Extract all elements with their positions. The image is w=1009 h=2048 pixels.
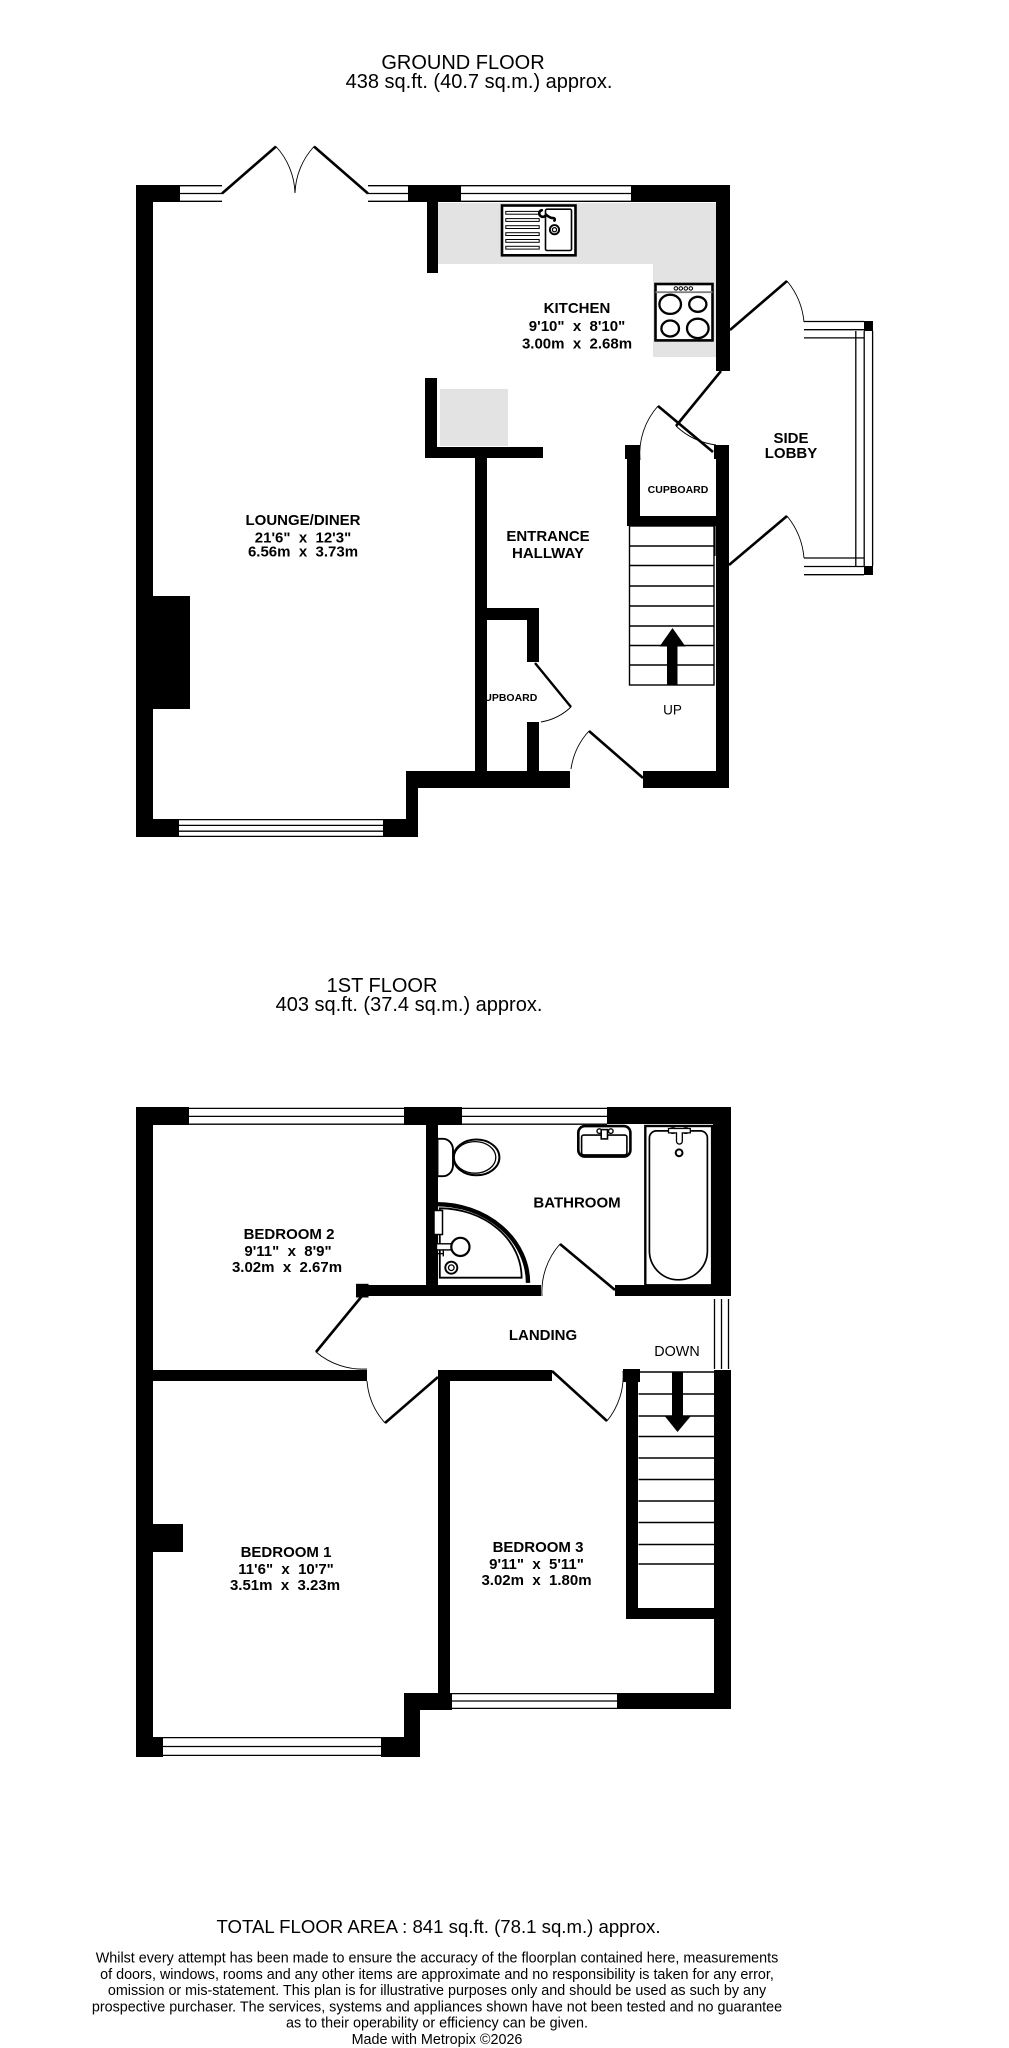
svg-text:BATHROOM: BATHROOM (533, 1195, 620, 1212)
svg-text:DOWN: DOWN (654, 1344, 699, 1360)
svg-text:as to their operability or eff: as to their operability or efficiency ca… (286, 2016, 588, 2032)
svg-text:6.56m x 3.73m: 6.56m x 3.73m (248, 544, 358, 561)
svg-text:LOBBY: LOBBY (765, 445, 818, 462)
svg-text:9'11" x 8'9": 9'11" x 8'9" (244, 1243, 331, 1260)
svg-text:omission or mis-statement. Thi: omission or mis-statement. This plan is … (108, 1983, 767, 1999)
svg-text:prospective purchaser. The ser: prospective purchaser. The services, sys… (92, 1999, 782, 2015)
svg-text:UP: UP (663, 703, 682, 718)
svg-text:9'11" x 5'11": 9'11" x 5'11" (489, 1556, 584, 1573)
svg-text:3.02m x 1.80m: 3.02m x 1.80m (481, 1572, 591, 1589)
svg-text:LANDING: LANDING (509, 1327, 577, 1344)
svg-text:Made with Metropix ©2026: Made with Metropix ©2026 (352, 2032, 523, 2048)
svg-text:BEDROOM 1: BEDROOM 1 (241, 1544, 332, 1561)
svg-text:BEDROOM 3: BEDROOM 3 (493, 1539, 584, 1556)
svg-text:KITCHEN: KITCHEN (544, 300, 611, 317)
svg-text:9'10" x 8'10": 9'10" x 8'10" (529, 318, 625, 335)
svg-text:3.51m x 3.23m: 3.51m x 3.23m (230, 1577, 340, 1594)
svg-text:438 sq.ft. (40.7 sq.m.) approx: 438 sq.ft. (40.7 sq.m.) approx. (346, 71, 613, 93)
svg-text:of doors, windows, rooms and a: of doors, windows, rooms and any other i… (100, 1967, 774, 1983)
svg-text:HALLWAY: HALLWAY (512, 545, 584, 562)
svg-text:3.02m x 2.67m: 3.02m x 2.67m (232, 1259, 342, 1276)
svg-text:Whilst every attempt has been: Whilst every attempt has been made to en… (96, 1951, 779, 1967)
svg-text:CUPBOARD: CUPBOARD (648, 484, 709, 496)
svg-text:ENTRANCE: ENTRANCE (506, 528, 589, 545)
svg-text:403 sq.ft. (37.4 sq.m.) approx: 403 sq.ft. (37.4 sq.m.) approx. (276, 994, 543, 1016)
svg-text:BEDROOM 2: BEDROOM 2 (244, 1226, 335, 1243)
svg-text:3.00m x 2.68m: 3.00m x 2.68m (522, 336, 632, 353)
svg-text:TOTAL FLOOR AREA : 841 sq.ft.: TOTAL FLOOR AREA : 841 sq.ft. (78.1 sq.m… (216, 1916, 660, 1937)
svg-text:11'6" x 10'7": 11'6" x 10'7" (238, 1561, 334, 1578)
svg-text:LOUNGE/DINER: LOUNGE/DINER (245, 512, 360, 529)
